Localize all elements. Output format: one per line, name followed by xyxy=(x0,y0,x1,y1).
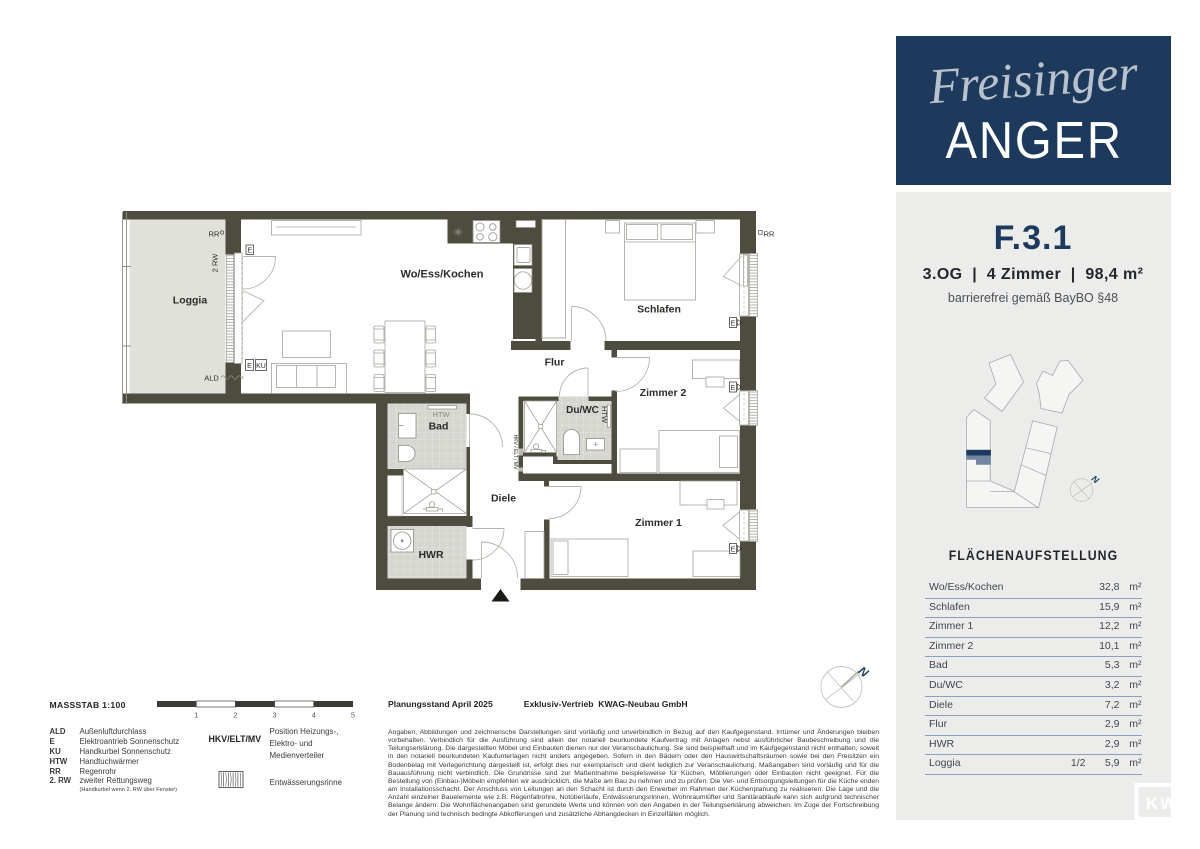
svg-text:Zimmer 2: Zimmer 2 xyxy=(640,387,687,399)
svg-text:3: 3 xyxy=(273,711,277,720)
svg-text:E: E xyxy=(247,363,252,370)
svg-text:E: E xyxy=(247,248,252,255)
svg-text:RR: RR xyxy=(764,230,775,239)
svg-text:Wo/Ess/Kochen: Wo/Ess/Kochen xyxy=(401,269,484,281)
svg-text:HWR: HWR xyxy=(418,549,443,561)
svg-text:Schlafen: Schlafen xyxy=(637,304,681,316)
svg-text:E: E xyxy=(731,547,736,554)
svg-text:KU: KU xyxy=(256,363,266,370)
svg-text:HTW: HTW xyxy=(600,406,609,424)
svg-text:ALD: ALD xyxy=(204,374,219,383)
svg-text:KW: KW xyxy=(1146,794,1178,813)
svg-text:Bad: Bad xyxy=(429,421,449,433)
svg-text:2 RW: 2 RW xyxy=(211,253,220,273)
svg-text:4: 4 xyxy=(312,711,316,720)
svg-text:RR: RR xyxy=(209,230,220,239)
svg-text:Flur: Flur xyxy=(545,357,565,369)
svg-text:Du/WC: Du/WC xyxy=(566,405,599,416)
svg-text:N: N xyxy=(856,664,872,681)
svg-text:5: 5 xyxy=(351,711,355,720)
svg-text:E: E xyxy=(731,321,736,328)
svg-text:E: E xyxy=(731,385,736,392)
svg-text:Zimmer 1: Zimmer 1 xyxy=(635,517,682,529)
svg-text:Diele: Diele xyxy=(491,493,516,505)
svg-text:2: 2 xyxy=(233,711,237,720)
svg-text:Loggia: Loggia xyxy=(173,295,208,307)
svg-text:1: 1 xyxy=(194,711,198,720)
svg-text:HTW: HTW xyxy=(432,410,450,419)
svg-text:HKV / ELT / MV: HKV / ELT / MV xyxy=(512,435,518,470)
